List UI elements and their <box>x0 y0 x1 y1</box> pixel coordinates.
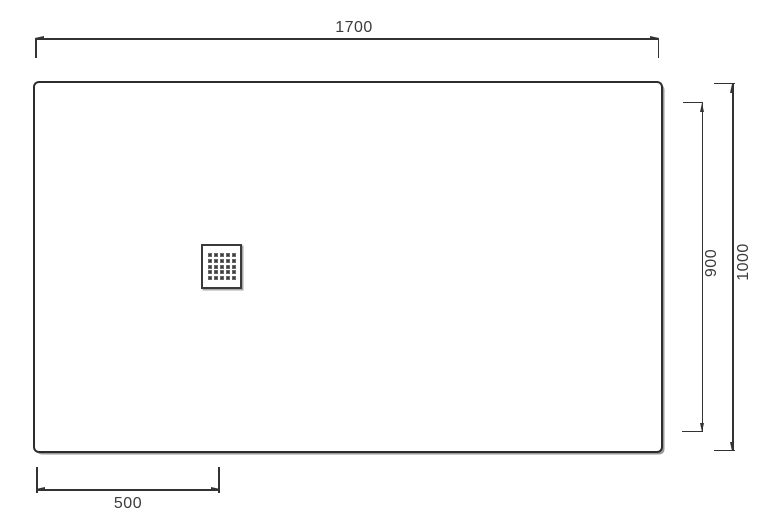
drain-dot <box>214 276 218 280</box>
drain-dot <box>220 259 224 263</box>
drain-dot <box>232 276 236 280</box>
extension-line <box>35 38 37 58</box>
drain-dot <box>232 259 236 263</box>
technical-drawing: 1700 900 1000 500 <box>0 0 767 520</box>
drain-dot <box>232 253 236 257</box>
drain-dot <box>220 276 224 280</box>
tray-outline <box>33 81 663 453</box>
drain-dot <box>214 270 218 274</box>
drain-dot <box>226 253 230 257</box>
drain-dot <box>220 265 224 269</box>
drain-dot <box>208 259 212 263</box>
dimension-label-width: 1700 <box>335 20 373 36</box>
drain-dot <box>226 259 230 263</box>
dimension-label-inner-depth: 900 <box>704 249 720 277</box>
arrow-right-icon <box>211 487 220 491</box>
arrow-up-icon <box>730 84 734 93</box>
drain-dot <box>226 276 230 280</box>
arrow-right-icon <box>650 36 659 40</box>
arrow-left-icon <box>35 36 44 40</box>
drain-dot <box>208 265 212 269</box>
dimension-line <box>732 84 734 451</box>
drain-grate-icon <box>201 244 242 289</box>
drain-dot <box>208 253 212 257</box>
drain-dot <box>226 265 230 269</box>
drain-dot <box>220 270 224 274</box>
drain-dot <box>208 270 212 274</box>
arrow-up-icon <box>700 103 704 112</box>
drain-dot <box>214 265 218 269</box>
arrow-down-icon <box>730 442 734 451</box>
drain-dot <box>220 253 224 257</box>
drain-dot <box>226 270 230 274</box>
extension-line <box>658 38 660 58</box>
drain-dot <box>208 276 212 280</box>
dimension-label-drain-offset: 500 <box>114 496 142 512</box>
drain-dot <box>214 259 218 263</box>
arrow-down-icon <box>700 423 704 432</box>
arrow-left-icon <box>36 487 45 491</box>
dimension-line <box>702 103 704 432</box>
dimension-line <box>35 38 659 40</box>
dimension-label-depth: 1000 <box>736 243 752 281</box>
drain-dot <box>232 265 236 269</box>
drain-dots <box>208 253 236 280</box>
drain-dot <box>214 253 218 257</box>
drain-dot <box>232 270 236 274</box>
dimension-line <box>36 489 219 491</box>
